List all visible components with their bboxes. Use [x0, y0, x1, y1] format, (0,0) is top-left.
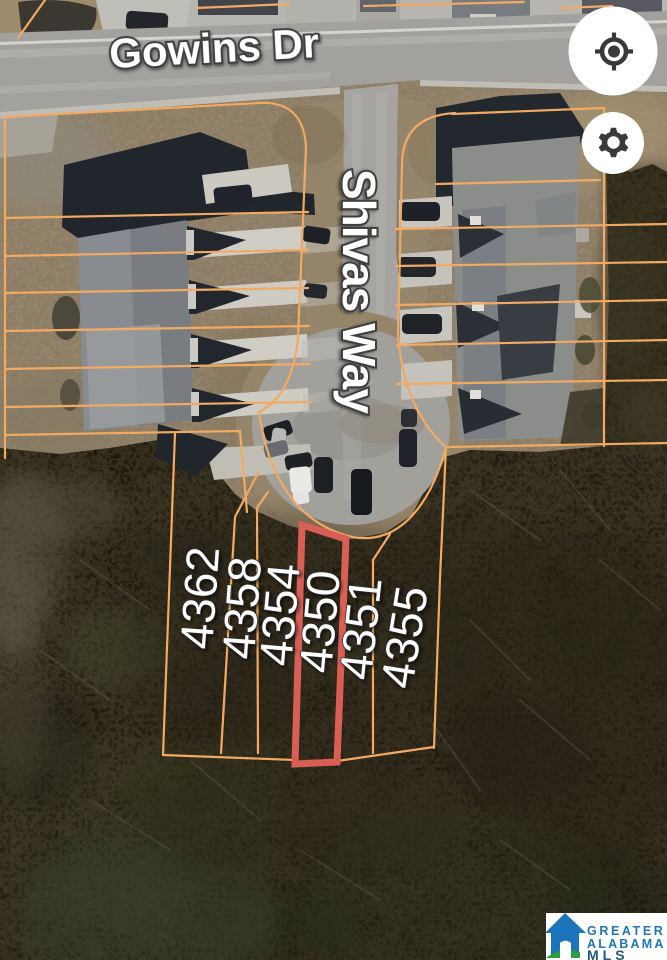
svg-text:MLS: MLS	[587, 947, 629, 960]
svg-text:Shivas Way: Shivas Way	[333, 169, 385, 414]
svg-text:GREATER: GREATER	[587, 924, 665, 938]
